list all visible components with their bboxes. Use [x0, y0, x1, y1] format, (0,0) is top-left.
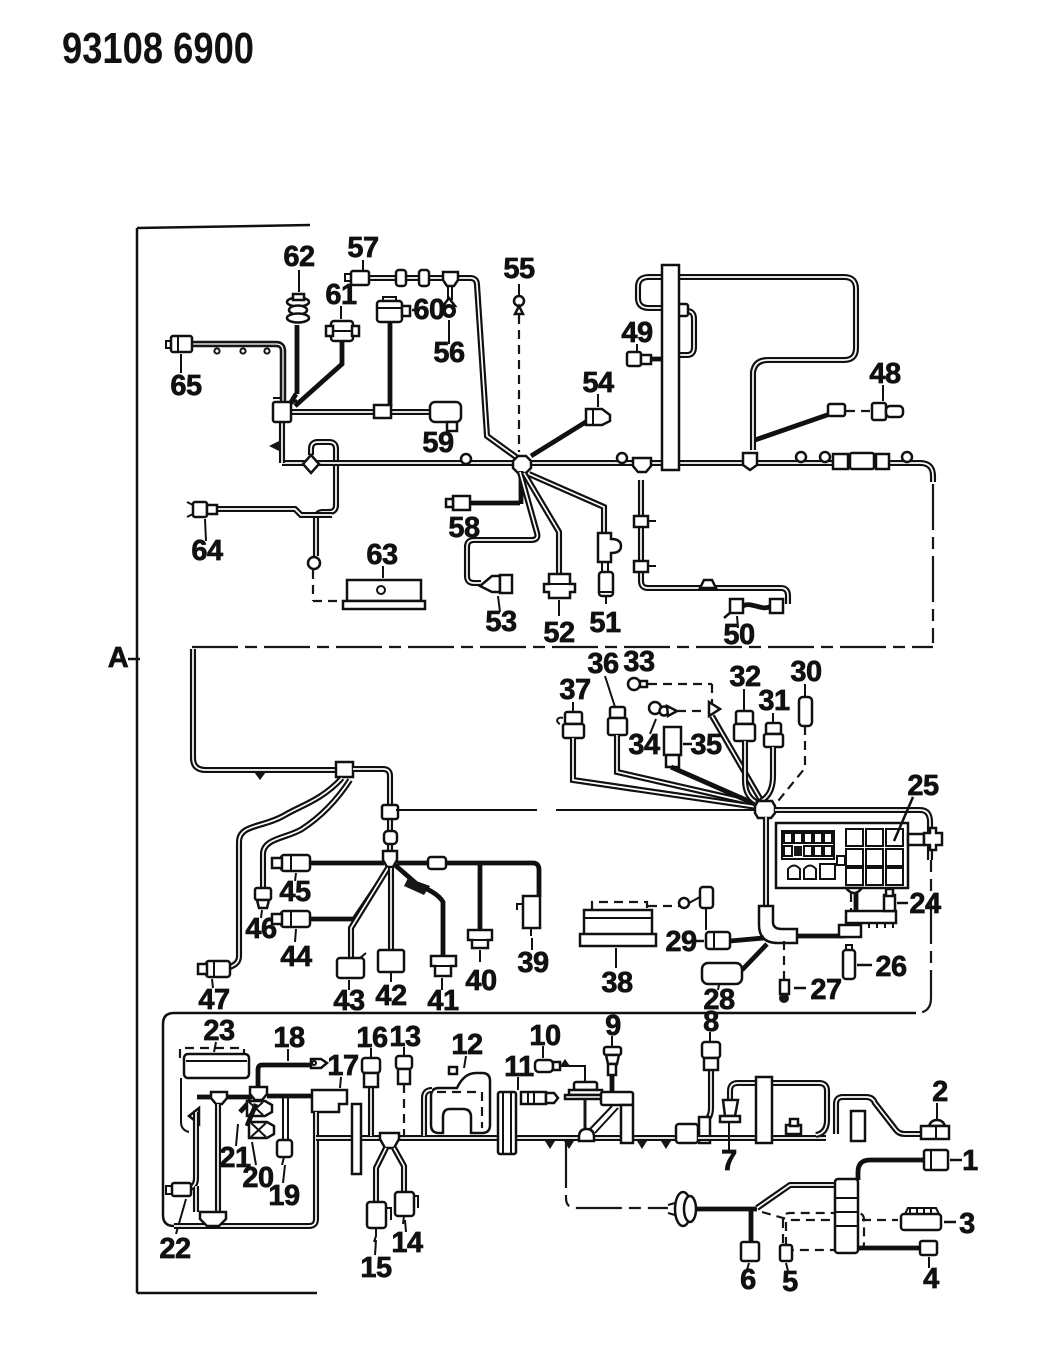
svg-text:29: 29: [665, 926, 697, 958]
svg-text:13: 13: [389, 1021, 421, 1053]
svg-text:15: 15: [360, 1252, 392, 1284]
svg-text:A: A: [108, 642, 129, 674]
svg-text:63: 63: [366, 539, 398, 571]
svg-text:65: 65: [170, 370, 202, 402]
svg-text:23: 23: [203, 1015, 235, 1047]
svg-text:19: 19: [268, 1180, 300, 1212]
svg-text:47: 47: [198, 984, 229, 1016]
svg-text:11: 11: [504, 1051, 534, 1083]
svg-text:57: 57: [347, 232, 378, 264]
svg-text:2: 2: [932, 1076, 948, 1108]
svg-text:43: 43: [333, 985, 365, 1017]
svg-text:5: 5: [782, 1266, 798, 1298]
svg-text:44: 44: [280, 941, 312, 973]
svg-text:26: 26: [875, 951, 907, 983]
svg-text:59: 59: [422, 427, 454, 459]
svg-text:30: 30: [790, 656, 821, 688]
svg-text:17: 17: [327, 1050, 358, 1082]
svg-text:39: 39: [517, 947, 549, 979]
svg-text:54: 54: [582, 367, 614, 399]
svg-text:9: 9: [605, 1010, 621, 1042]
svg-text:37: 37: [559, 674, 590, 706]
svg-text:12: 12: [451, 1029, 482, 1061]
svg-text:10: 10: [529, 1020, 560, 1052]
svg-text:22: 22: [159, 1233, 190, 1265]
svg-text:6: 6: [740, 1264, 756, 1296]
svg-text:53: 53: [485, 606, 517, 638]
svg-text:42: 42: [375, 980, 406, 1012]
svg-text:38: 38: [601, 967, 633, 999]
svg-text:45: 45: [279, 876, 311, 908]
svg-text:36: 36: [587, 648, 619, 680]
svg-text:55: 55: [503, 253, 535, 285]
svg-text:8: 8: [703, 1006, 719, 1038]
svg-text:16: 16: [356, 1022, 388, 1054]
svg-text:60: 60: [413, 294, 444, 326]
svg-text:18: 18: [273, 1022, 305, 1054]
svg-text:62: 62: [283, 241, 314, 273]
svg-text:48: 48: [869, 358, 901, 390]
svg-text:34: 34: [628, 729, 660, 761]
svg-text:31: 31: [758, 685, 790, 717]
svg-text:33: 33: [623, 646, 655, 678]
svg-text:1: 1: [962, 1145, 978, 1177]
svg-text:7: 7: [721, 1145, 737, 1177]
svg-text:4: 4: [923, 1263, 939, 1295]
svg-text:35: 35: [690, 729, 722, 761]
svg-text:93108 6900: 93108 6900: [62, 24, 254, 73]
svg-text:64: 64: [191, 535, 223, 567]
svg-text:52: 52: [543, 617, 574, 649]
svg-text:41: 41: [427, 985, 459, 1017]
svg-text:56: 56: [433, 337, 465, 369]
svg-text:32: 32: [729, 661, 760, 693]
svg-text:49: 49: [621, 317, 653, 349]
svg-text:14: 14: [391, 1227, 423, 1259]
svg-text:24: 24: [909, 888, 941, 920]
svg-text:40: 40: [465, 965, 496, 997]
svg-text:27: 27: [810, 974, 841, 1006]
svg-text:3: 3: [959, 1208, 975, 1240]
svg-text:50: 50: [723, 619, 754, 651]
svg-text:51: 51: [589, 607, 621, 639]
